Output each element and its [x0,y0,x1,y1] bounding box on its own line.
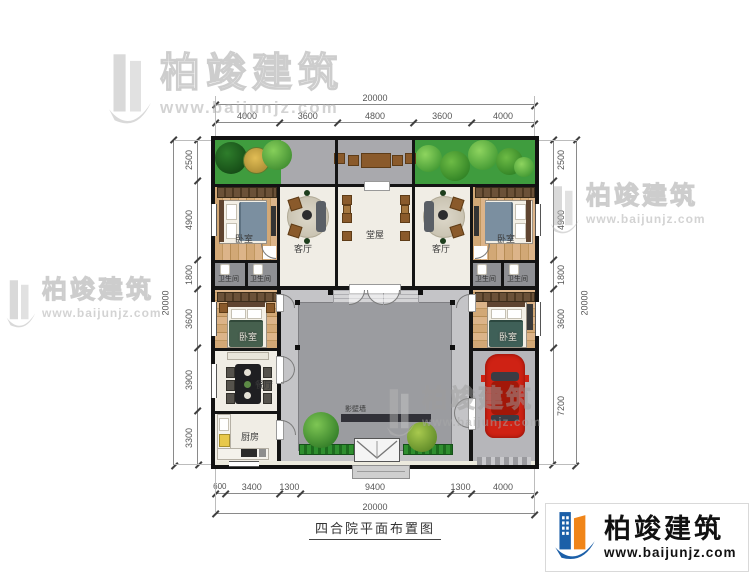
pillow-icon [491,309,506,319]
dim-value: 4000 [471,108,535,123]
room-label: 卧室 [499,330,517,343]
dim-value: 1300 [450,479,471,494]
dim-value: 20000 [215,90,535,105]
chair-icon [342,231,352,241]
stove-icon [241,449,257,457]
chair-icon [226,393,235,404]
watermark-logo-icon [108,52,152,138]
room-label: 卧室 [235,232,253,245]
car-mirror [525,375,529,382]
window [535,302,541,336]
screen-wall [341,414,431,422]
side-table-icon [401,205,409,214]
sofa-icon [316,201,326,232]
extension-line [174,140,215,141]
car-windshield [491,372,519,381]
chair-icon [348,155,359,166]
extension-line [215,469,216,513]
extension-line [174,464,215,465]
pillow-icon [515,204,526,220]
room-label: 卫生间 [218,274,239,284]
dim-value: 20000 [161,290,171,315]
chair-icon [400,213,410,223]
car-roof [491,381,519,415]
window [535,204,541,236]
dim-left-total: 20000 [158,140,174,465]
extension-line [534,469,535,513]
column [295,300,300,305]
gate-door-icon [355,439,399,461]
wall [469,289,473,461]
room-label: 卫生间 [507,274,528,284]
wall [470,184,473,289]
dim-top-segments: 4000 3600 4800 3600 4000 [215,108,535,123]
chair-icon [342,195,352,205]
appliance-icon [259,449,266,457]
dim-value: 3900 [185,370,195,390]
dim-bottom-segments: 600 3400 1300 9400 1300 4000 [215,479,535,494]
plate-icon [244,381,251,388]
tv-cabinet-icon [474,206,479,236]
bed-headboard [227,302,265,307]
tv-cabinet-icon [271,206,276,236]
wall [335,140,338,289]
step-line [357,471,405,472]
wall [245,260,248,289]
watermark: 柏竣建筑 www.baijunjz.com [6,277,162,339]
room-label: 客厅 [432,242,450,255]
dim-top-total: 20000 [215,90,535,105]
dim-value: 4900 [185,210,195,230]
wall [501,260,504,289]
pillow-icon [226,204,237,220]
sink-icon [219,418,229,431]
dim-value: 1300 [279,479,300,494]
pillow-icon [231,309,246,319]
wall [473,260,535,263]
bed-headboard [219,200,224,242]
room-label: 卫生间 [475,274,496,284]
wardrobe-icon [217,187,277,198]
chair-icon [263,393,272,404]
wardrobe-icon [217,292,277,302]
chair-icon [226,380,235,391]
dim-value: 2500 [557,150,567,170]
entrance-steps [352,465,410,479]
window [211,204,217,236]
nightstand-icon [219,303,228,313]
coffee-table-icon [438,210,448,220]
dim-value: 1800 [557,265,567,285]
car-mirror [481,375,485,382]
side-table-icon [343,205,351,214]
brand-name: 柏竣建筑 [604,516,737,543]
tree-icon [468,140,498,170]
dim-value: 3400 [225,479,279,494]
tree-icon [415,145,442,172]
dim-value: 4900 [557,210,567,230]
chair-icon [400,231,410,241]
wall [215,348,277,351]
dim-value: 7200 [557,396,567,416]
watermark-url: www.baijunjz.com [586,212,706,226]
wardrobe-icon [475,292,535,302]
chair-icon [392,155,403,166]
dim-value: 2500 [185,150,195,170]
watermark-name: 柏竣建筑 [42,277,162,303]
extension-line [535,464,577,465]
dim-value: 20000 [215,499,535,514]
column [450,345,455,350]
drawing-title: 四合院平面布置图 [215,518,535,537]
dim-right-total: 20000 [576,140,592,465]
chair-icon [263,367,272,378]
pillow-icon [247,309,262,319]
hall-north-door [364,181,390,191]
drawing-title-text: 四合院平面布置图 [309,521,441,540]
window [229,461,259,467]
tree-icon [514,157,534,177]
dim-value: 1800 [185,265,195,285]
wall [412,286,535,290]
dim-value: 4800 [337,108,414,123]
tv-cabinet-icon [527,304,533,330]
table-icon [361,153,391,168]
floor-plan-page: { "title": "四合院平面布置图", "brand": { "name"… [0,0,750,576]
wardrobe-icon [475,187,535,198]
room-label: 卧室 [497,232,515,245]
bush-icon [303,412,339,448]
dim-value: 3600 [413,108,471,123]
extension-line [534,96,535,136]
room-label: 客厅 [294,242,312,255]
plant-icon [304,190,310,196]
plate-icon [244,369,251,376]
plant-icon [440,190,446,196]
brand-logo: 柏竣建筑 www.baijunjz.com [545,503,749,572]
column [295,345,300,350]
column [418,290,423,295]
dim-value: 3600 [185,309,195,329]
car-rear-window [491,415,519,421]
tree-icon [262,140,292,170]
chair-icon [400,195,410,205]
bush-icon [407,422,437,452]
column [328,290,333,295]
garage-door [468,398,476,430]
sofa-icon [424,201,434,232]
extension-line [215,96,216,136]
bed-headboard [526,200,531,242]
dim-value: 4000 [471,479,535,494]
wall [412,140,415,289]
screen-wall-label: 影壁墙 [345,404,366,414]
floor-plan: 影壁墙 [211,136,539,469]
wall [277,184,280,289]
dim-left-segments: 2500 4900 1800 3600 3900 3300 [182,140,198,465]
dim-value: 4000 [215,108,279,123]
brand-logo-icon [554,510,596,566]
room-label: 卫生间 [250,274,271,284]
room-label: 厨房 [241,430,259,443]
bed-headboard [487,302,525,307]
watermark-logo-icon [6,277,36,339]
column [450,300,455,305]
entrance-gate [354,438,400,462]
appliance-icon [219,434,230,447]
garage-exterior-door [477,457,531,465]
dim-value: 3600 [279,108,337,123]
watermark: 柏竣建筑 www.baijunjz.com [550,183,706,245]
wall [473,348,535,351]
window [211,302,217,336]
sideboard-icon [227,352,269,360]
chair-icon [342,213,352,223]
plate-icon [244,392,251,399]
dim-value: 20000 [580,290,590,315]
extension-line [535,140,577,141]
dim-value: 9400 [300,479,450,494]
watermark-name: 柏竣建筑 [586,183,706,209]
dim-right-segments: 2500 4900 1800 3600 7200 [553,140,569,465]
brand-url: www.baijunjz.com [604,545,737,560]
watermark-name: 柏竣建筑 [160,52,344,94]
dim-value: 3300 [185,428,195,448]
coffee-table-icon [302,210,312,220]
room-label: 餐厅 [255,378,273,391]
dim-value: 3600 [557,309,567,329]
window [211,364,217,398]
chair-icon [226,367,235,378]
room-label: 卧室 [239,330,257,343]
pillow-icon [515,223,526,239]
tree-icon [440,151,470,181]
nightstand-icon [266,303,275,313]
room-label: 堂屋 [366,228,384,241]
pillow-icon [507,309,522,319]
watermark-url: www.baijunjz.com [42,306,162,320]
dim-bottom-total: 20000 [215,499,535,514]
dim-value: 600 [215,479,225,494]
